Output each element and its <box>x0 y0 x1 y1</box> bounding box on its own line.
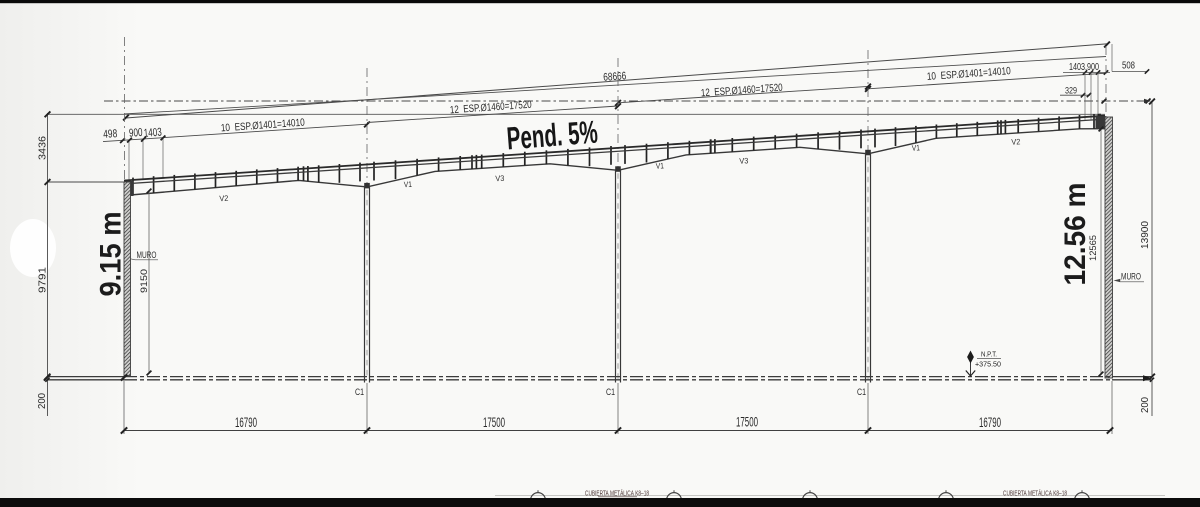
svg-text:498: 498 <box>103 128 118 141</box>
svg-text:13900: 13900 <box>1140 221 1151 249</box>
svg-text:V3: V3 <box>495 174 505 183</box>
svg-text:16790: 16790 <box>979 415 1001 430</box>
svg-text:329: 329 <box>1065 86 1077 97</box>
svg-text:Pend. 5%: Pend. 5% <box>505 114 598 157</box>
svg-text:V2: V2 <box>219 194 229 203</box>
svg-text:200: 200 <box>37 393 48 409</box>
svg-text:508: 508 <box>1122 61 1135 72</box>
svg-text:200: 200 <box>1140 397 1151 413</box>
svg-text:N.P.T.: N.P.T. <box>981 350 997 359</box>
svg-text:C1: C1 <box>606 387 615 398</box>
svg-text:MURO: MURO <box>137 250 157 260</box>
svg-text:16790: 16790 <box>235 415 257 430</box>
svg-text:C1: C1 <box>857 387 866 398</box>
svg-text:12.56 m: 12.56 m <box>1059 183 1092 286</box>
svg-text:68666: 68666 <box>603 70 627 84</box>
svg-text:9791: 9791 <box>38 266 49 293</box>
svg-text:17500: 17500 <box>483 415 505 430</box>
svg-text:V3: V3 <box>739 156 749 165</box>
svg-text:9150: 9150 <box>139 269 150 293</box>
svg-text:3436: 3436 <box>38 136 49 160</box>
svg-text:CUBIERTA METÁLICA K8–18: CUBIERTA METÁLICA K8–18 <box>1003 489 1067 498</box>
svg-text:1403: 1403 <box>143 127 162 140</box>
svg-text:C1: C1 <box>355 387 364 398</box>
svg-text:V2: V2 <box>1011 137 1021 146</box>
svg-text:1403,900: 1403,900 <box>1069 62 1099 73</box>
svg-text:V1: V1 <box>404 180 413 189</box>
svg-text:MURO: MURO <box>1121 272 1141 282</box>
svg-text:V1: V1 <box>656 161 665 170</box>
svg-text:CUBIERTA METÁLICA K8–18: CUBIERTA METÁLICA K8–18 <box>585 489 649 498</box>
svg-text:9.15 m: 9.15 m <box>95 212 128 297</box>
svg-text:V1: V1 <box>912 143 921 152</box>
svg-text:+375.50: +375.50 <box>975 360 1001 369</box>
svg-text:17500: 17500 <box>736 415 758 430</box>
